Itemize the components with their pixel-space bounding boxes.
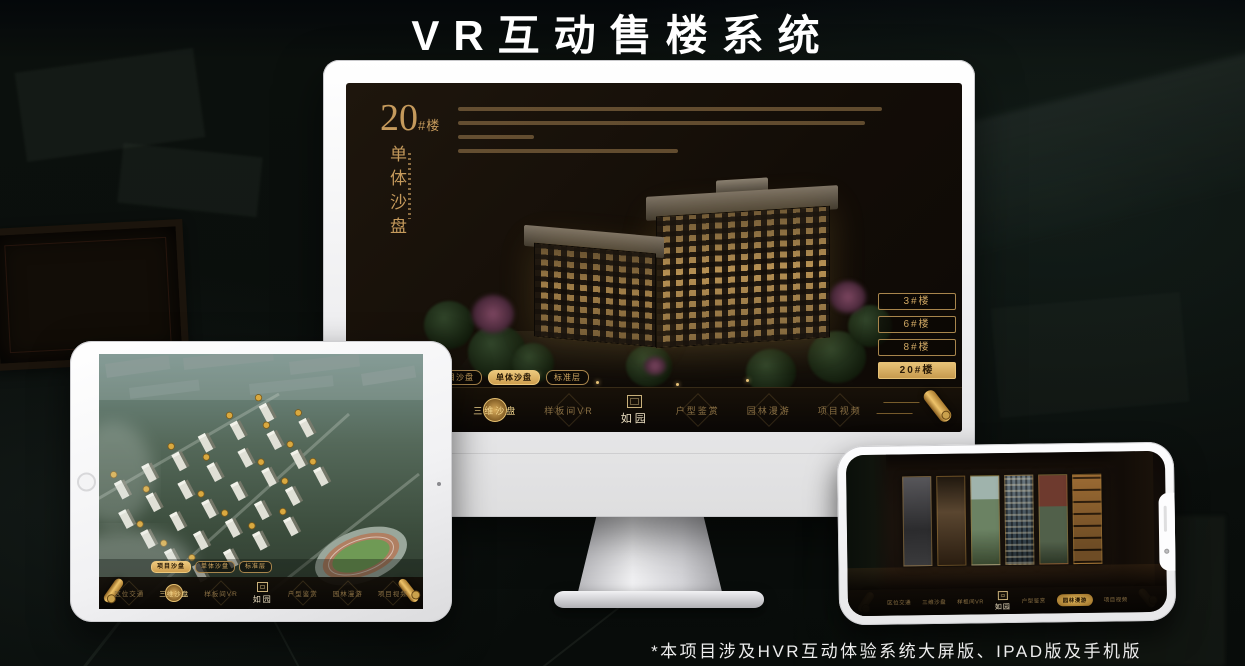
building-button-6[interactable]: 6#楼 xyxy=(878,316,956,333)
nav-item-project-video[interactable]: 项目视频 xyxy=(818,404,862,417)
phone-screen: 区位交通 三维沙盘 样板间VR 如园 户型鉴赏 园林漫游 项目视频 xyxy=(846,451,1167,616)
building-button-20[interactable]: 20#楼 xyxy=(878,362,956,379)
blossom-tree xyxy=(644,357,666,375)
text-line xyxy=(458,107,882,111)
headline-decor-bar xyxy=(408,153,411,219)
nav-item-garden-tour[interactable]: 园林漫游 xyxy=(1057,594,1093,607)
logo-text: 如园 xyxy=(621,410,649,426)
panel-thumbnail[interactable] xyxy=(1072,474,1102,564)
panel-thumbnail[interactable] xyxy=(936,476,966,566)
building-selector: 3#楼 6#楼 8#楼 20#楼 xyxy=(878,293,956,385)
nav-item-3d-sandtable[interactable]: 三维沙盘 xyxy=(159,588,189,598)
monitor-stand-neck xyxy=(577,512,723,596)
nav-item-showroom-vr[interactable]: 样板间VR xyxy=(204,588,238,598)
panel-thumbnail[interactable] xyxy=(1038,474,1068,564)
nav-item-floorplans[interactable]: 户型鉴赏 xyxy=(676,404,720,417)
path-light xyxy=(746,379,749,382)
building-button-3[interactable]: 3#楼 xyxy=(878,293,956,310)
building-facade-wing xyxy=(534,243,656,348)
panorama-panels xyxy=(902,474,1102,567)
path-light xyxy=(676,383,679,386)
building-number: 20 xyxy=(380,97,418,139)
logo-seal-icon xyxy=(627,395,642,408)
nav-item-project-video[interactable]: 项目视频 xyxy=(1104,595,1128,603)
panel-thumbnail[interactable] xyxy=(902,476,932,566)
blossom-tree xyxy=(472,295,514,333)
panel-thumbnail[interactable] xyxy=(1004,475,1034,565)
poster-canvas: VR互动售楼系统 20#楼 单体沙盘 xyxy=(0,0,1245,666)
tablet-nav-bar: 区位交通 三维沙盘 样板间VR 如园 户型鉴赏 园林漫游 项目视频 xyxy=(99,577,423,609)
nav-item-3d-sandtable[interactable]: 三维沙盘 xyxy=(473,404,517,417)
phone-nav-bar: 区位交通 三维沙盘 样板间VR 如园 户型鉴赏 园林漫游 项目视频 xyxy=(848,586,1167,616)
headline-vertical-label: 单体沙盘 xyxy=(384,145,409,255)
camera-icon xyxy=(437,482,441,486)
blossom-tree xyxy=(830,281,866,313)
path-light xyxy=(596,381,599,384)
tablet-mockup: 项目沙盘 单体沙盘 标准层 区位交通 三维沙盘 样板间VR 如园 户型鉴赏 园林… xyxy=(70,341,452,622)
panel-thumbnail[interactable] xyxy=(970,475,1000,565)
background-photo-block xyxy=(991,292,1190,418)
tab-project-sandtable[interactable]: 项目沙盘 xyxy=(151,561,191,573)
footnote-text: *本项目涉及HVR互动体验系统大屏版、IPAD版及手机版 xyxy=(651,637,1142,662)
text-line xyxy=(458,135,534,139)
nav-item-floorplans[interactable]: 户型鉴赏 xyxy=(288,588,318,598)
brand-logo: 如园 xyxy=(995,590,1011,611)
nav-item-showroom-vr[interactable]: 样板间VR xyxy=(957,597,984,605)
nav-item-garden-tour[interactable]: 园林漫游 xyxy=(747,404,791,417)
monitor-stand-base xyxy=(554,591,764,608)
speaker-icon xyxy=(1164,505,1167,531)
tab-standard-floor[interactable]: 标准层 xyxy=(546,370,589,385)
building-facade-main xyxy=(656,206,830,349)
sandtable-mode-tabs: 项目沙盘 单体沙盘 标准层 xyxy=(430,370,589,385)
brand-logo: 如园 xyxy=(621,395,649,426)
nav-item-3d-sandtable[interactable]: 三维沙盘 xyxy=(922,598,946,606)
logo-text: 如园 xyxy=(995,601,1011,611)
tab-single-sandtable[interactable]: 单体沙盘 xyxy=(195,561,235,573)
nav-item-showroom-vr[interactable]: 样板间VR xyxy=(544,404,594,417)
building-button-8[interactable]: 8#楼 xyxy=(878,339,956,356)
logo-seal-icon xyxy=(998,590,1008,599)
brand-logo: 如园 xyxy=(253,582,273,605)
tablet-mode-tabs: 项目沙盘 单体沙盘 标准层 xyxy=(151,561,272,573)
nav-item-floorplans[interactable]: 户型鉴赏 xyxy=(1022,596,1046,604)
building-number-suffix: #楼 xyxy=(418,118,440,133)
nav-item-garden-tour[interactable]: 园林漫游 xyxy=(333,588,363,598)
tablet-screen: 项目沙盘 单体沙盘 标准层 区位交通 三维沙盘 样板间VR 如园 户型鉴赏 园林… xyxy=(99,354,423,609)
camera-icon xyxy=(1164,548,1169,553)
home-button xyxy=(77,472,96,491)
logo-seal-icon xyxy=(257,582,268,592)
tab-standard-floor[interactable]: 标准层 xyxy=(239,561,272,573)
phone-notch xyxy=(1158,492,1175,570)
phone-mockup: 区位交通 三维沙盘 样板间VR 如园 户型鉴赏 园林漫游 项目视频 xyxy=(837,442,1176,626)
text-line xyxy=(458,121,865,125)
interior-lintel xyxy=(886,451,1135,470)
scroll-decor-lines xyxy=(876,402,919,414)
logo-text: 如园 xyxy=(253,594,273,605)
tab-single-sandtable[interactable]: 单体沙盘 xyxy=(488,370,540,385)
nav-item-location[interactable]: 区位交通 xyxy=(887,598,911,606)
page-title: VR互动售楼系统 xyxy=(0,2,1245,63)
